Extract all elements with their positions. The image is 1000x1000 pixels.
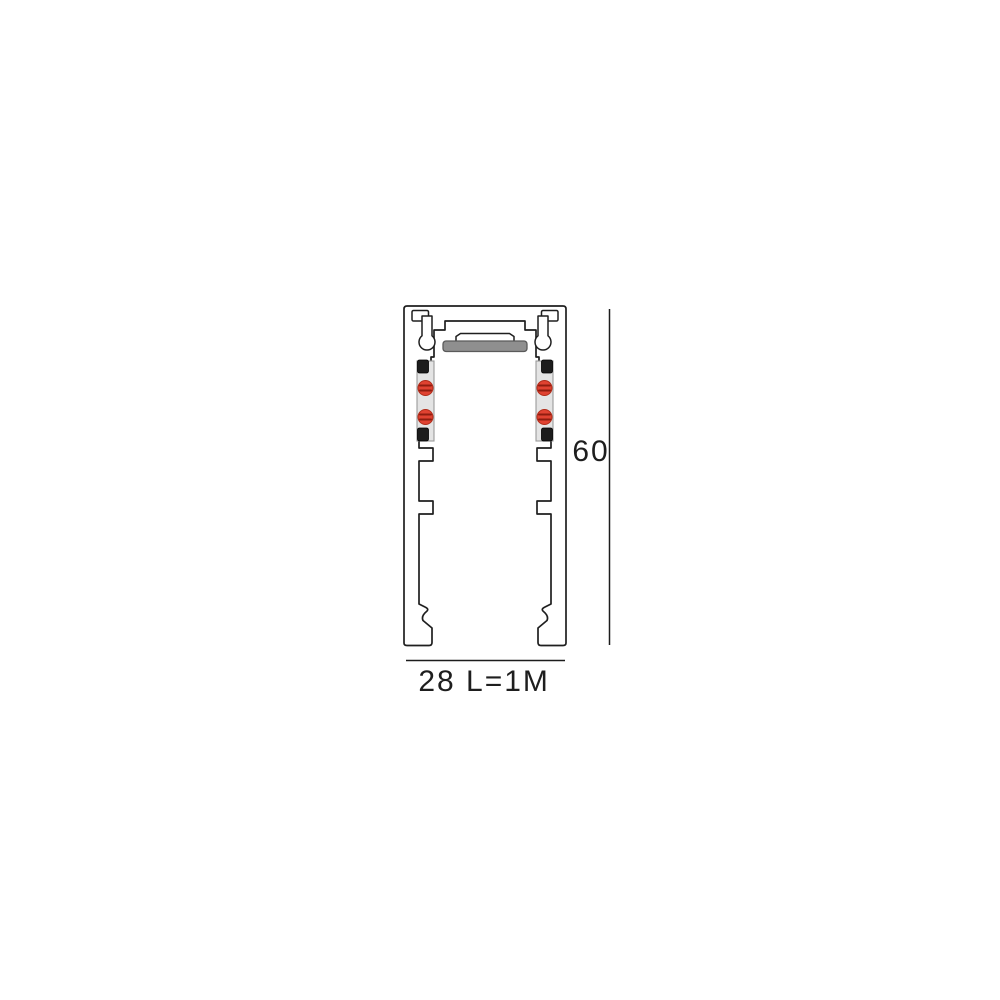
dimension-width: 28 L=1M [406, 661, 565, 699]
width-dimension-label: 28 [418, 665, 455, 698]
keyhole-left [419, 316, 435, 350]
strip-clip-top [418, 360, 429, 373]
magnet-bar-assembly [443, 334, 527, 352]
profile-body [404, 306, 566, 646]
keyhole-right [535, 316, 551, 350]
magnet-housing-bracket [456, 334, 514, 342]
contact-dot [418, 410, 433, 425]
strip-clip-bottom [542, 428, 553, 441]
strip-clip-bottom [418, 428, 429, 441]
profile-outline [404, 306, 566, 646]
contact-dot [537, 410, 552, 425]
contact-strip-left [417, 360, 434, 441]
drawing-canvas: 60 28 L=1M [0, 0, 1000, 1000]
height-dimension-label: 60 [572, 435, 609, 468]
track-profile-drawing: 60 28 L=1M [0, 0, 1000, 1000]
contact-dot [418, 381, 433, 396]
strip-clip-top [542, 360, 553, 373]
dimension-height: 60 [572, 309, 609, 645]
contact-dot [537, 381, 552, 396]
magnet-bar [443, 341, 527, 352]
contact-strip-right [536, 360, 553, 441]
length-dimension-label: L=1M [466, 665, 550, 698]
